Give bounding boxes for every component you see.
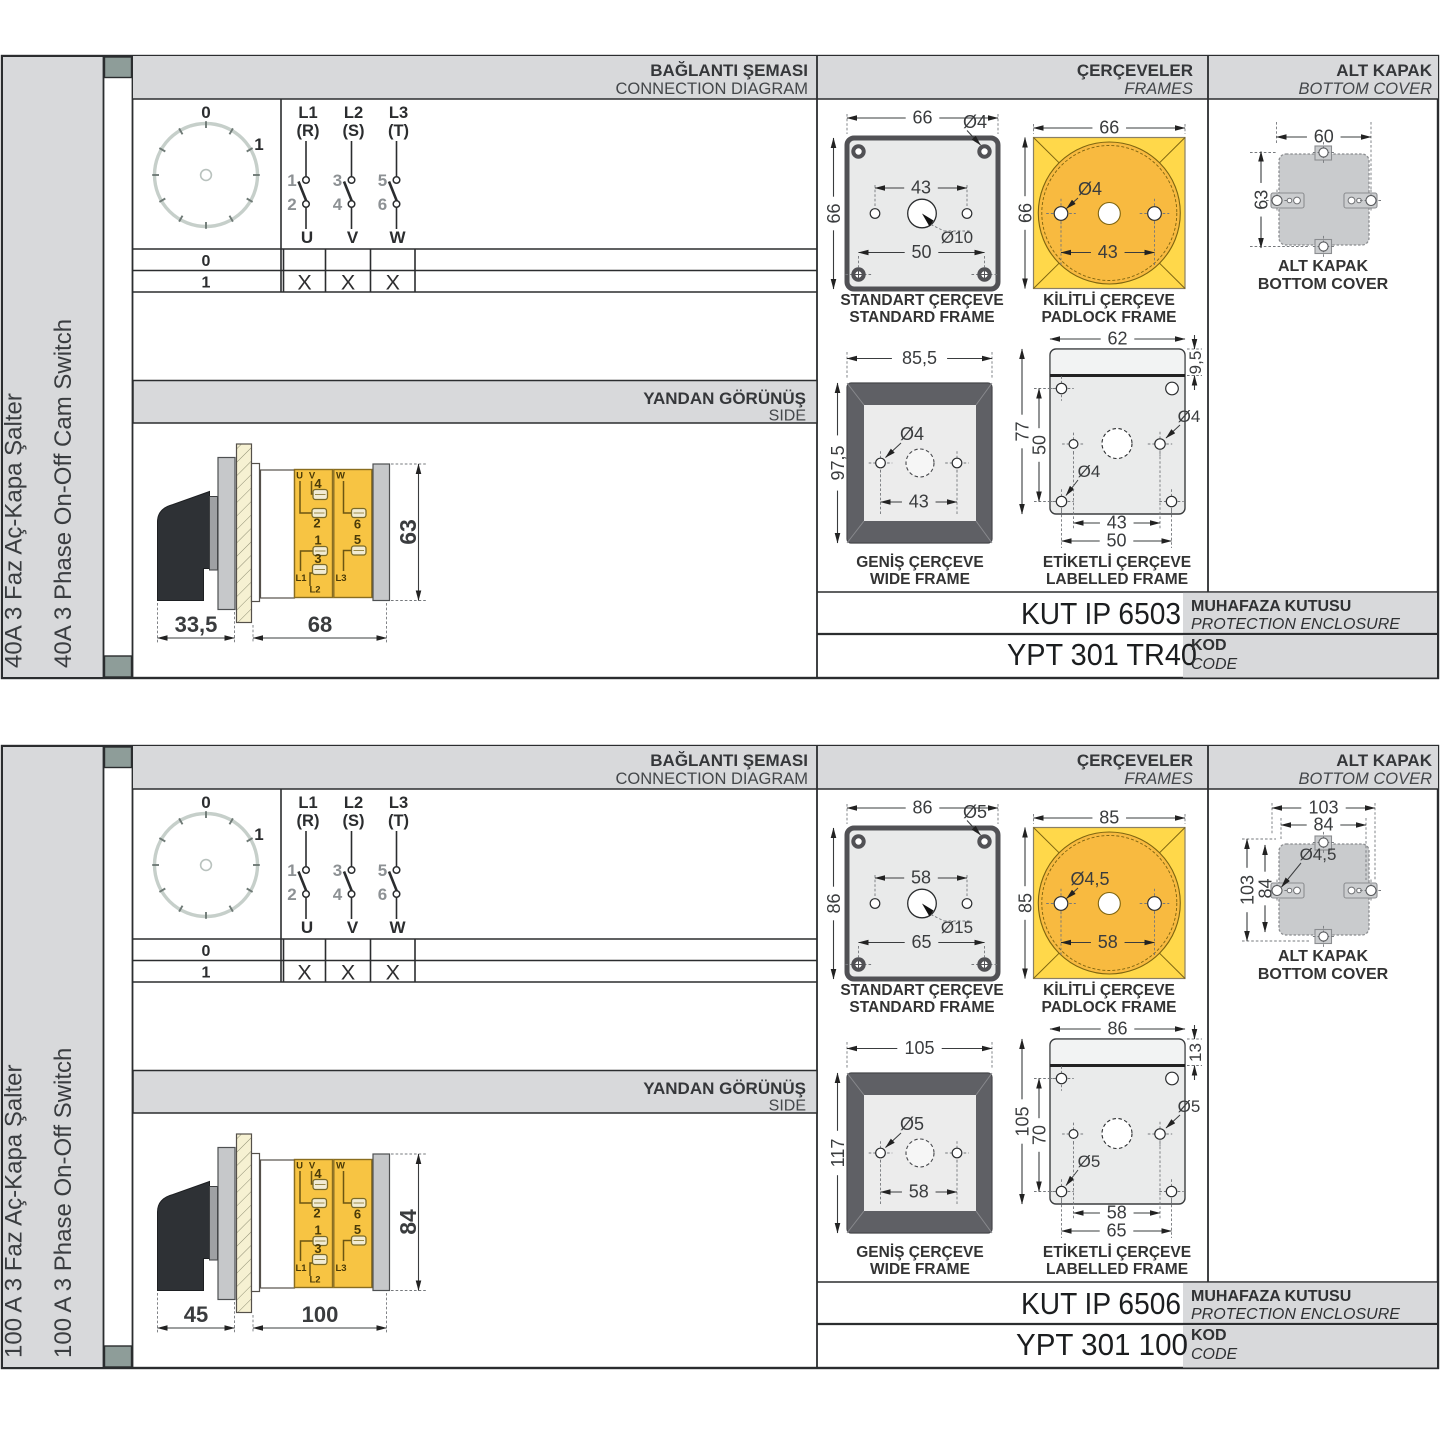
svg-text:66: 66 [1016, 203, 1036, 223]
svg-text:84: 84 [395, 1209, 421, 1235]
svg-text:3: 3 [333, 861, 342, 880]
svg-text:ÇERÇEVELER: ÇERÇEVELER [1077, 61, 1193, 80]
svg-text:43: 43 [911, 178, 931, 198]
svg-text:58: 58 [1098, 932, 1118, 952]
svg-text:X: X [297, 961, 311, 985]
svg-text:43: 43 [1098, 242, 1118, 262]
svg-text:MUHAFAZA KUTUSU: MUHAFAZA KUTUSU [1191, 598, 1351, 615]
svg-text:U: U [296, 1161, 303, 1172]
svg-text:(S): (S) [343, 812, 365, 830]
svg-text:43: 43 [1107, 513, 1127, 533]
svg-text:X: X [341, 271, 355, 295]
svg-text:4: 4 [333, 195, 343, 214]
svg-text:MUHAFAZA KUTUSU: MUHAFAZA KUTUSU [1191, 1288, 1351, 1305]
svg-text:1: 1 [287, 171, 296, 190]
svg-text:5: 5 [354, 1222, 361, 1237]
svg-text:GENİŞ ÇERÇEVE: GENİŞ ÇERÇEVE [856, 554, 983, 571]
svg-text:2: 2 [287, 195, 296, 214]
svg-text:Ø5: Ø5 [1078, 1152, 1101, 1171]
svg-text:CODE: CODE [1191, 1346, 1238, 1363]
svg-text:4: 4 [314, 1166, 322, 1181]
svg-text:97,5: 97,5 [828, 445, 848, 480]
svg-text:W: W [336, 471, 345, 482]
svg-text:117: 117 [828, 1139, 848, 1168]
svg-text:STANDARD FRAME: STANDARD FRAME [849, 999, 994, 1016]
svg-text:LABELLED FRAME: LABELLED FRAME [1046, 1261, 1188, 1278]
svg-text:L3: L3 [335, 1263, 346, 1274]
svg-text:KOD: KOD [1191, 1327, 1227, 1344]
svg-text:6: 6 [378, 885, 387, 904]
svg-text:Ø5: Ø5 [900, 1114, 924, 1134]
svg-text:PADLOCK FRAME: PADLOCK FRAME [1042, 309, 1177, 326]
svg-text:85: 85 [1099, 808, 1119, 828]
svg-text:PADLOCK FRAME: PADLOCK FRAME [1042, 999, 1177, 1016]
svg-text:58: 58 [911, 868, 931, 888]
svg-text:L1: L1 [295, 573, 307, 584]
svg-text:0: 0 [202, 253, 211, 270]
svg-text:KİLİTLİ ÇERÇEVE: KİLİTLİ ÇERÇEVE [1043, 982, 1175, 999]
svg-text:U: U [301, 228, 313, 247]
svg-text:0: 0 [202, 943, 211, 960]
svg-text:100: 100 [302, 1302, 339, 1327]
svg-text:YPT 301 100: YPT 301 100 [1016, 1327, 1188, 1362]
svg-text:62: 62 [1107, 329, 1127, 349]
svg-text:U: U [296, 471, 303, 482]
svg-text:40A 3 Phase On-Off Cam Switch: 40A 3 Phase On-Off Cam Switch [50, 319, 77, 668]
svg-text:X: X [297, 271, 311, 295]
svg-text:66: 66 [912, 108, 932, 128]
svg-text:U: U [301, 918, 313, 937]
svg-text:BOTTOM COVER: BOTTOM COVER [1258, 966, 1389, 983]
svg-text:(R): (R) [297, 812, 320, 830]
svg-text:5: 5 [378, 861, 387, 880]
svg-text:KİLİTLİ ÇERÇEVE: KİLİTLİ ÇERÇEVE [1043, 292, 1175, 309]
svg-text:L1: L1 [295, 1263, 307, 1274]
svg-text:6: 6 [354, 517, 361, 532]
svg-text:84: 84 [1256, 878, 1276, 898]
svg-text:4: 4 [314, 476, 322, 491]
svg-text:YANDAN GÖRÜNÜŞ: YANDAN GÖRÜNÜŞ [643, 1079, 806, 1098]
svg-text:Ø4: Ø4 [1178, 407, 1201, 426]
svg-text:86: 86 [1107, 1019, 1127, 1039]
svg-text:1: 1 [314, 533, 321, 548]
svg-text:KOD: KOD [1191, 637, 1227, 654]
svg-text:L3: L3 [389, 104, 408, 122]
svg-text:70: 70 [1030, 1125, 1050, 1145]
svg-text:40A 3 Faz Aç-Kapa Şalter: 40A 3 Faz Aç-Kapa Şalter [1, 393, 28, 668]
svg-text:86: 86 [912, 798, 932, 818]
svg-text:L1: L1 [298, 104, 317, 122]
svg-text:STANDARD FRAME: STANDARD FRAME [849, 309, 994, 326]
svg-text:Ø4,5: Ø4,5 [1070, 869, 1109, 889]
svg-text:105: 105 [904, 1038, 934, 1058]
svg-text:X: X [341, 961, 355, 985]
svg-text:100 A 3 Phase On-Off Switch: 100 A 3 Phase On-Off Switch [50, 1048, 77, 1358]
svg-text:WIDE FRAME: WIDE FRAME [870, 571, 970, 588]
svg-text:0: 0 [201, 793, 210, 812]
svg-text:(R): (R) [297, 122, 320, 140]
svg-text:5: 5 [378, 171, 387, 190]
svg-text:V: V [347, 228, 359, 247]
svg-text:FRAMES: FRAMES [1124, 80, 1193, 98]
svg-text:1: 1 [202, 965, 211, 982]
svg-text:Ø15: Ø15 [941, 918, 973, 937]
svg-text:L3: L3 [389, 794, 408, 812]
svg-text:50: 50 [911, 242, 931, 262]
svg-text:43: 43 [909, 492, 929, 512]
svg-text:V: V [309, 471, 316, 482]
svg-text:58: 58 [1107, 1203, 1127, 1223]
svg-text:60: 60 [1314, 127, 1334, 147]
svg-text:13: 13 [1186, 1043, 1205, 1062]
svg-text:W: W [389, 918, 406, 937]
svg-text:Ø4: Ø4 [1078, 462, 1101, 481]
svg-text:Ø4: Ø4 [963, 112, 987, 132]
svg-text:33,5: 33,5 [175, 612, 218, 637]
svg-text:YPT 301 TR40: YPT 301 TR40 [1007, 637, 1197, 672]
svg-text:ALT KAPAK: ALT KAPAK [1278, 948, 1369, 965]
svg-text:Ø4: Ø4 [1078, 179, 1102, 199]
svg-text:1: 1 [254, 825, 263, 844]
svg-text:BOTTOM COVER: BOTTOM COVER [1298, 80, 1432, 98]
svg-text:6: 6 [378, 195, 387, 214]
svg-text:1: 1 [314, 1223, 321, 1238]
svg-text:V: V [309, 1161, 316, 1172]
svg-text:ALT KAPAK: ALT KAPAK [1278, 258, 1369, 275]
svg-text:ALT KAPAK: ALT KAPAK [1336, 751, 1432, 770]
svg-text:L3: L3 [335, 573, 346, 584]
svg-text:3: 3 [314, 551, 321, 566]
svg-text:WIDE FRAME: WIDE FRAME [870, 1261, 970, 1278]
svg-text:KUT IP 6506: KUT IP 6506 [1021, 1286, 1181, 1321]
svg-text:86: 86 [824, 893, 844, 913]
svg-text:CONNECTION DIAGRAM: CONNECTION DIAGRAM [615, 80, 808, 98]
svg-text:2: 2 [313, 516, 320, 531]
svg-text:50: 50 [1030, 435, 1050, 455]
svg-text:X: X [386, 961, 400, 985]
svg-text:0: 0 [201, 103, 210, 122]
svg-text:5: 5 [354, 532, 361, 547]
svg-text:STANDART ÇERÇEVE: STANDART ÇERÇEVE [840, 982, 1003, 999]
svg-text:Ø5: Ø5 [1178, 1097, 1201, 1116]
svg-text:4: 4 [333, 885, 343, 904]
svg-text:50: 50 [1106, 531, 1126, 551]
svg-text:65: 65 [1106, 1221, 1126, 1241]
svg-text:63: 63 [395, 519, 421, 545]
svg-text:Ø4,5: Ø4,5 [1300, 845, 1337, 864]
svg-text:(T): (T) [388, 812, 409, 830]
svg-text:W: W [389, 228, 406, 247]
svg-text:9,5: 9,5 [1186, 351, 1205, 375]
svg-text:YANDAN GÖRÜNÜŞ: YANDAN GÖRÜNÜŞ [643, 389, 806, 408]
svg-text:L2: L2 [309, 1275, 320, 1286]
svg-text:85: 85 [1016, 893, 1036, 913]
svg-text:3: 3 [314, 1241, 321, 1256]
svg-text:SIDE: SIDE [769, 1098, 806, 1115]
svg-text:BAĞLANTI ŞEMASI: BAĞLANTI ŞEMASI [650, 751, 808, 770]
svg-text:L2: L2 [344, 794, 363, 812]
svg-text:1: 1 [254, 135, 263, 154]
svg-text:W: W [336, 1161, 345, 1172]
svg-text:68: 68 [308, 612, 332, 637]
svg-text:Ø5: Ø5 [963, 802, 987, 822]
svg-text:Ø10: Ø10 [941, 228, 973, 247]
svg-text:L1: L1 [298, 794, 317, 812]
svg-text:CODE: CODE [1191, 656, 1238, 673]
svg-text:KUT IP 6503: KUT IP 6503 [1021, 596, 1181, 631]
svg-text:CONNECTION DIAGRAM: CONNECTION DIAGRAM [615, 770, 808, 788]
svg-text:V: V [347, 918, 359, 937]
svg-text:BAĞLANTI ŞEMASI: BAĞLANTI ŞEMASI [650, 61, 808, 80]
svg-text:ALT KAPAK: ALT KAPAK [1336, 61, 1432, 80]
svg-text:65: 65 [911, 932, 931, 952]
svg-text:1: 1 [287, 861, 296, 880]
svg-text:BOTTOM COVER: BOTTOM COVER [1298, 770, 1432, 788]
svg-text:ETİKETLİ ÇERÇEVE: ETİKETLİ ÇERÇEVE [1043, 1244, 1191, 1261]
svg-text:ÇERÇEVELER: ÇERÇEVELER [1077, 751, 1193, 770]
svg-text:L2: L2 [344, 104, 363, 122]
svg-text:FRAMES: FRAMES [1124, 770, 1193, 788]
svg-text:ETİKETLİ ÇERÇEVE: ETİKETLİ ÇERÇEVE [1043, 554, 1191, 571]
svg-text:63: 63 [1252, 190, 1272, 210]
svg-text:LABELLED FRAME: LABELLED FRAME [1046, 571, 1188, 588]
svg-text:PROTECTION ENCLOSURE: PROTECTION ENCLOSURE [1191, 616, 1400, 633]
svg-text:45: 45 [184, 1302, 208, 1327]
svg-text:84: 84 [1313, 815, 1333, 835]
svg-text:Ø4: Ø4 [900, 424, 924, 444]
svg-text:58: 58 [909, 1182, 929, 1202]
svg-text:L2: L2 [309, 585, 320, 596]
svg-text:1: 1 [202, 275, 211, 292]
svg-text:GENİŞ ÇERÇEVE: GENİŞ ÇERÇEVE [856, 1244, 983, 1261]
svg-text:STANDART ÇERÇEVE: STANDART ÇERÇEVE [840, 292, 1003, 309]
svg-text:(T): (T) [388, 122, 409, 140]
svg-text:PROTECTION ENCLOSURE: PROTECTION ENCLOSURE [1191, 1306, 1400, 1323]
svg-text:66: 66 [824, 203, 844, 223]
svg-text:100 A 3 Faz Aç-Kapa Şalter: 100 A 3 Faz Aç-Kapa Şalter [1, 1064, 28, 1358]
svg-text:3: 3 [333, 171, 342, 190]
svg-text:X: X [386, 271, 400, 295]
svg-text:6: 6 [354, 1207, 361, 1222]
svg-text:2: 2 [313, 1206, 320, 1221]
svg-text:(S): (S) [343, 122, 365, 140]
svg-text:SIDE: SIDE [769, 408, 806, 425]
svg-text:103: 103 [1238, 875, 1258, 905]
svg-text:2: 2 [287, 885, 296, 904]
svg-text:BOTTOM COVER: BOTTOM COVER [1258, 276, 1389, 293]
svg-text:85,5: 85,5 [902, 348, 937, 368]
svg-text:66: 66 [1099, 118, 1119, 138]
